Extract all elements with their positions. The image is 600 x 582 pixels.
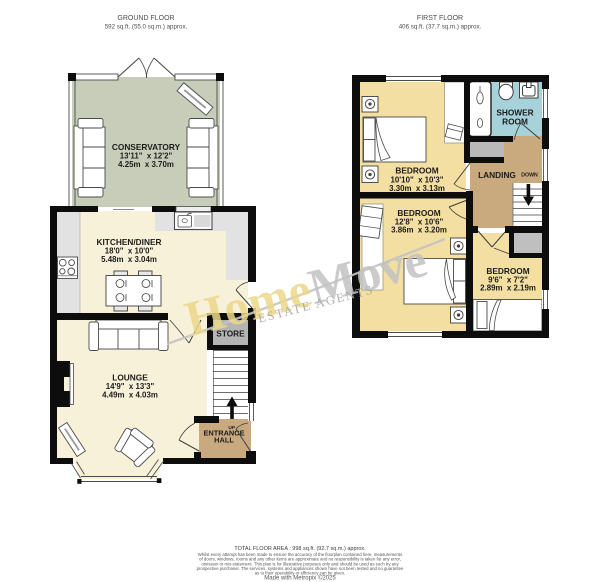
svg-text:LOUNGE: LOUNGE — [112, 373, 148, 383]
svg-text:Made with Metropix ©2025: Made with Metropix ©2025 — [264, 575, 336, 582]
svg-text:592 sq.ft. (55.0 sq.m.) approx: 592 sq.ft. (55.0 sq.m.) approx. — [105, 24, 188, 31]
svg-text:GROUND FLOOR: GROUND FLOOR — [117, 15, 174, 22]
svg-text:CONSERVATORY: CONSERVATORY — [112, 142, 181, 152]
svg-text:LANDING: LANDING — [478, 170, 516, 180]
svg-text:2.89m x 2.19m: 2.89m x 2.19m — [480, 284, 536, 293]
svg-text:3.86m x 3.20m: 3.86m x 3.20m — [391, 226, 447, 235]
svg-text:HALL: HALL — [214, 436, 234, 445]
svg-text:BEDROOM: BEDROOM — [395, 166, 438, 176]
svg-text:FIRST FLOOR: FIRST FLOOR — [417, 15, 463, 22]
svg-text:3.30m x 3.13m: 3.30m x 3.13m — [389, 184, 445, 193]
svg-text:BEDROOM: BEDROOM — [486, 266, 529, 276]
svg-text:BEDROOM: BEDROOM — [397, 208, 440, 218]
svg-text:KITCHEN/DINER: KITCHEN/DINER — [97, 237, 162, 247]
svg-text:DOWN: DOWN — [521, 173, 538, 179]
svg-text:4.25m x 3.70m: 4.25m x 3.70m — [118, 160, 174, 169]
svg-text:4.49m x 4.03m: 4.49m x 4.03m — [102, 391, 158, 400]
svg-text:5.48m x 3.04m: 5.48m x 3.04m — [101, 255, 157, 264]
svg-text:406 sq.ft. (37.7 sq.m.) approx: 406 sq.ft. (37.7 sq.m.) approx. — [399, 24, 482, 31]
